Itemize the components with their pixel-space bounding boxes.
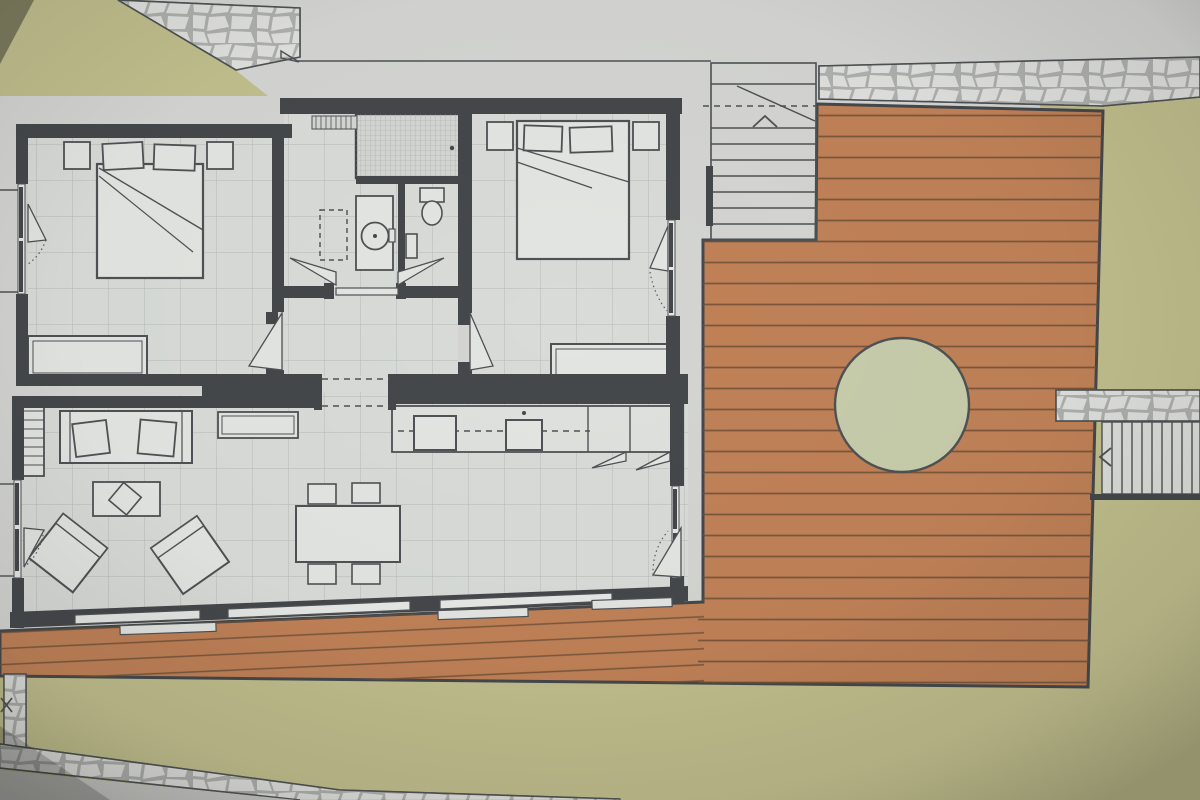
photo-effects [0,0,1200,800]
floor-plan-photo [0,0,1200,800]
floor-plan-drawing [0,0,1200,800]
vignette-overlay [0,0,1200,800]
